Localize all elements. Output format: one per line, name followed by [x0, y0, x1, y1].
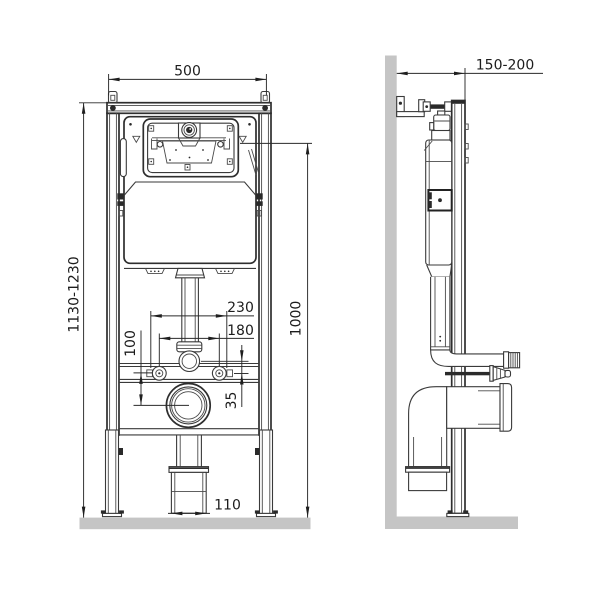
vent-right — [216, 268, 235, 273]
fill-valve — [430, 111, 450, 140]
installation-frame-drawing: 500 1130-1230 1000 230 — [0, 0, 600, 600]
dim-35-label: 35 — [224, 392, 240, 410]
dim-180-label: 180 — [227, 323, 254, 339]
dim-1000-label: 1000 — [289, 301, 305, 337]
cable-channel — [120, 139, 126, 177]
drain-outlet — [447, 387, 500, 429]
cistern-front — [117, 117, 262, 274]
front-view: 500 1130-1230 1000 230 — [67, 63, 313, 529]
screw-left — [110, 105, 116, 111]
dimension-500: 500 — [109, 63, 267, 95]
drain-pipe-front — [169, 435, 209, 513]
screw-right — [262, 105, 268, 111]
wall — [385, 56, 397, 517]
dim-230-label: 230 — [227, 300, 254, 316]
dim-depth-label: 150-200 — [476, 57, 535, 73]
hanger-tab-right — [261, 92, 270, 104]
leg-right — [255, 430, 278, 517]
dim-110-label: 110 — [214, 497, 241, 513]
fixing-bolt-right — [212, 366, 232, 380]
hanger-tab-left — [109, 92, 118, 104]
dim-100-label: 100 — [123, 330, 139, 357]
dimension-1130-1230: 1130-1230 — [67, 103, 107, 518]
flush-stub-thread — [509, 353, 520, 368]
drain-outlet-flange — [500, 384, 512, 432]
side-view: 150-200 — [385, 56, 543, 530]
floor-front — [80, 518, 311, 530]
vent-left — [146, 268, 165, 273]
lower-crossbar — [119, 429, 259, 435]
service-bracket — [428, 190, 451, 211]
dimension-150-200: 150-200 — [397, 57, 543, 100]
drain-socket-side — [409, 472, 447, 490]
dim-500-label: 500 — [174, 63, 201, 79]
cistern-side — [424, 111, 452, 277]
flush-elbow — [431, 350, 504, 367]
dimension-180: 180 — [159, 323, 254, 366]
floor-side — [385, 517, 518, 530]
flush-pipe-side — [431, 277, 520, 368]
flush-pipe-front — [176, 268, 205, 371]
dim-height-label: 1130-1230 — [67, 256, 83, 332]
leg-left — [101, 430, 124, 517]
